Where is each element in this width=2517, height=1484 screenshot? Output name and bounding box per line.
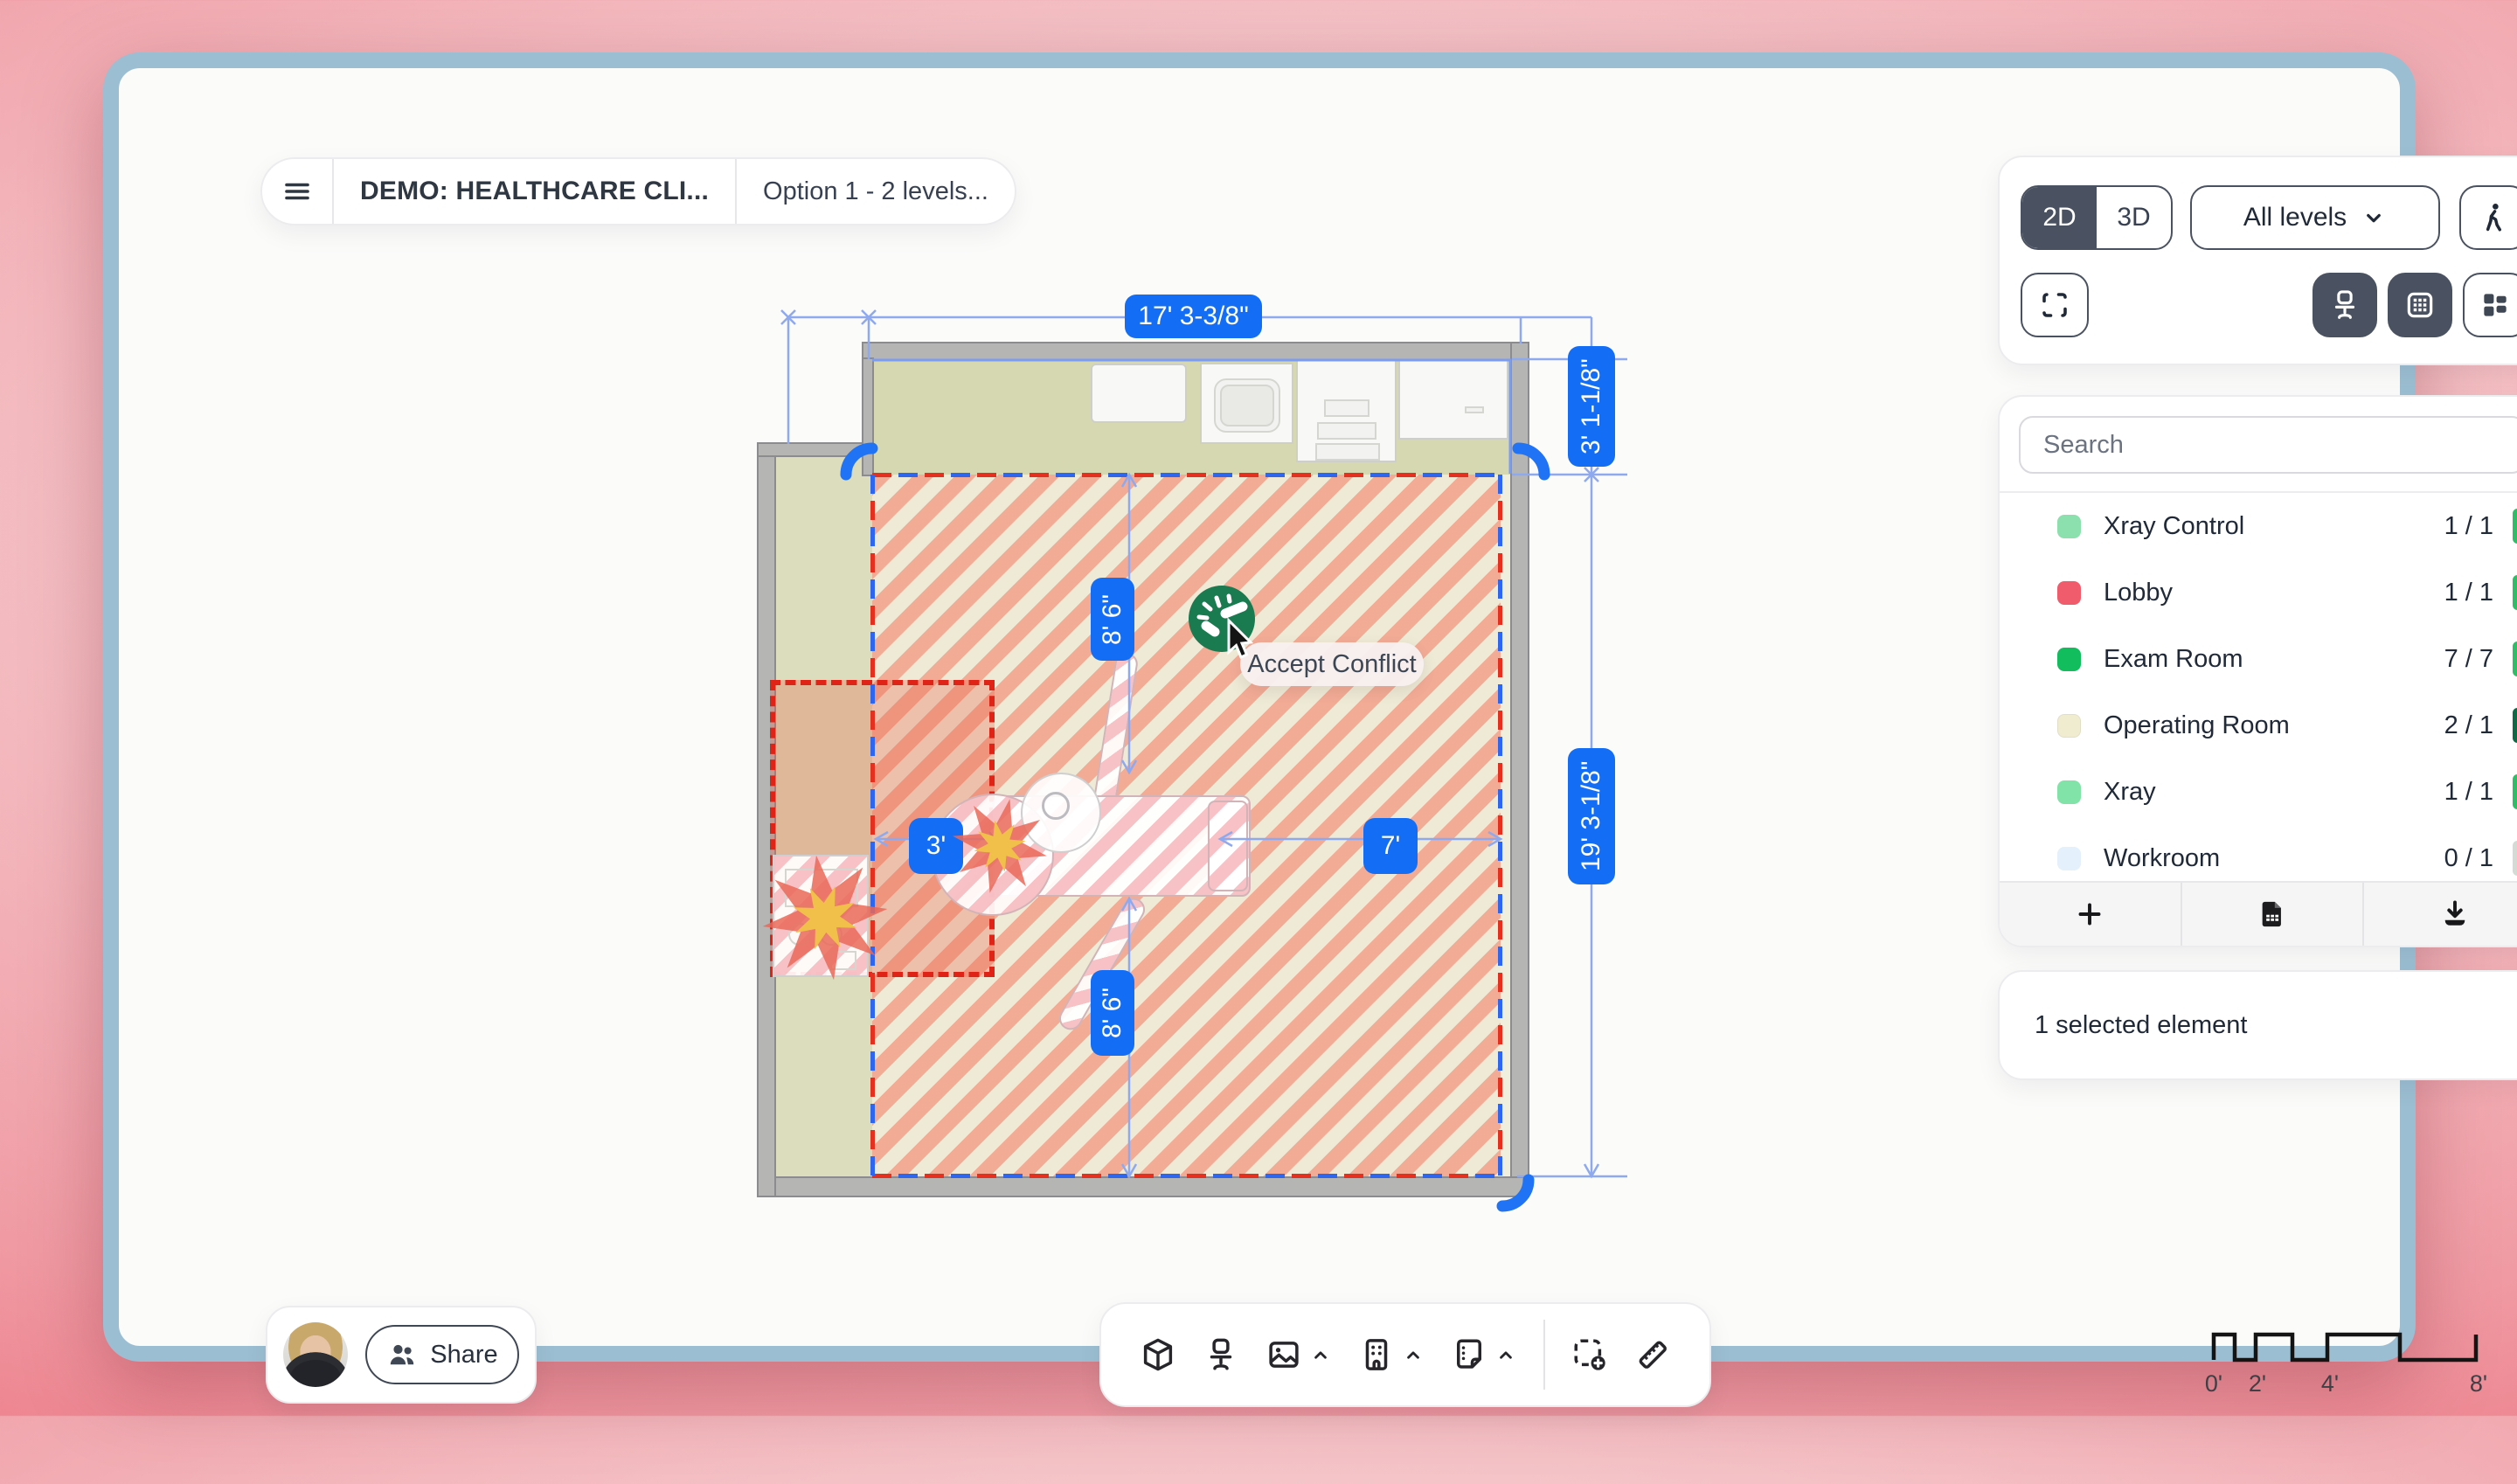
layer-count: 2 / 1 bbox=[2444, 711, 2493, 740]
appliance-detail bbox=[1315, 443, 1380, 461]
chevron-down-icon bbox=[2361, 205, 2387, 231]
fullscreen-icon bbox=[2039, 289, 2070, 321]
file-spreadsheet-icon bbox=[2257, 899, 2287, 929]
color-swatch bbox=[2057, 581, 2081, 605]
share-card: Share bbox=[266, 1306, 537, 1404]
status-bar bbox=[2513, 641, 2517, 676]
dim-label-clearance-left[interactable]: 3' bbox=[909, 818, 963, 874]
report-button[interactable] bbox=[2181, 883, 2363, 946]
scale-tick-label: 8' bbox=[2470, 1370, 2487, 1397]
counter-shelf[interactable] bbox=[1091, 364, 1187, 423]
xray-machine-head-ring bbox=[1042, 792, 1070, 820]
scale-tick-label: 4' bbox=[2321, 1370, 2339, 1397]
console-knob bbox=[788, 923, 811, 946]
chevron-up-icon bbox=[1309, 1343, 1332, 1366]
zone-border-left bbox=[870, 475, 875, 1176]
wall-top bbox=[863, 343, 1528, 359]
selection-status-text: 1 selected element bbox=[2035, 1011, 2247, 1040]
office-chair-icon bbox=[1203, 1336, 1239, 1373]
sink-unit[interactable] bbox=[1200, 363, 1293, 444]
layers-panel: Xray Control 1 / 1 Lobby 1 / 1 Exam Room… bbox=[1998, 395, 2517, 947]
app-window: 17' 3-3/8" 3' 1-1/8" 19' 3-1/8" 8' 6" 8'… bbox=[103, 52, 2416, 1362]
dim-label-offset-right[interactable]: 3' 1-1/8" bbox=[1568, 346, 1615, 467]
menu-button[interactable] bbox=[262, 159, 332, 224]
status-bar bbox=[2513, 575, 2517, 610]
walk-icon bbox=[2477, 201, 2510, 234]
furniture-view-button[interactable] bbox=[2312, 273, 2377, 337]
appliance-detail bbox=[1317, 422, 1376, 440]
notes-tool[interactable] bbox=[1451, 1336, 1517, 1373]
layer-label: Xray bbox=[2104, 778, 2444, 807]
note-icon bbox=[1451, 1336, 1487, 1373]
layer-label: Exam Room bbox=[2104, 645, 2444, 674]
share-button-label: Share bbox=[430, 1341, 497, 1370]
equipment-console[interactable] bbox=[773, 855, 869, 977]
layer-count: 1 / 1 bbox=[2444, 778, 2493, 807]
layer-label: Xray Control bbox=[2104, 512, 2444, 541]
select-add-icon bbox=[1571, 1336, 1608, 1373]
layer-count: 1 / 1 bbox=[2444, 512, 2493, 541]
cube-3d-icon bbox=[1140, 1336, 1176, 1373]
people-icon bbox=[386, 1339, 418, 1370]
grid-icon bbox=[2403, 288, 2437, 322]
status-bar bbox=[2513, 841, 2517, 876]
measure-tool[interactable] bbox=[1634, 1336, 1671, 1373]
bottom-toolbar bbox=[1099, 1302, 1711, 1407]
project-title[interactable]: DEMO: HEALTHCARE CLI... bbox=[332, 159, 735, 224]
avatar[interactable] bbox=[283, 1322, 348, 1387]
scale-bar: 0' 2' 4' 8' bbox=[2199, 1320, 2517, 1407]
levels-dropdown-value: All levels bbox=[2243, 203, 2347, 232]
plus-icon bbox=[2074, 898, 2105, 930]
zone-border-bottom bbox=[872, 1174, 1501, 1178]
layer-count: 7 / 7 bbox=[2444, 645, 2493, 674]
layer-row-workroom[interactable]: Workroom 0 / 1 bbox=[2000, 825, 2517, 884]
layer-label: Operating Room bbox=[2104, 711, 2444, 740]
status-bar bbox=[2513, 509, 2517, 544]
layer-row-lobby[interactable]: Lobby 1 / 1 bbox=[2000, 559, 2517, 626]
export-button[interactable] bbox=[2362, 883, 2517, 946]
tab-3d[interactable]: 3D bbox=[2097, 187, 2171, 248]
fullscreen-button[interactable] bbox=[2021, 273, 2089, 337]
sink-basin-inner bbox=[1220, 385, 1274, 426]
layer-count: 1 / 1 bbox=[2444, 579, 2493, 607]
color-swatch bbox=[2057, 847, 2081, 870]
color-swatch bbox=[2057, 714, 2081, 738]
ruler-icon bbox=[1634, 1336, 1671, 1373]
status-bar bbox=[2513, 708, 2517, 743]
search-input[interactable] bbox=[2019, 416, 2517, 474]
zone-border-top bbox=[872, 473, 1501, 477]
xray-machine-table-cap bbox=[1208, 801, 1248, 891]
building-tool[interactable] bbox=[1358, 1336, 1425, 1373]
view-controls-card: 2D 3D All levels bbox=[1998, 156, 2517, 365]
tab-2d[interactable]: 2D bbox=[2022, 187, 2097, 248]
office-chair-icon bbox=[2328, 288, 2361, 322]
desktop-background: 17' 3-3/8" 3' 1-1/8" 19' 3-1/8" 8' 6" 8'… bbox=[0, 0, 2517, 1416]
wall-left-room-top bbox=[759, 444, 872, 455]
furniture-tool[interactable] bbox=[1203, 1336, 1239, 1373]
select-area-tool[interactable] bbox=[1571, 1336, 1608, 1373]
scale-tick-label: 2' bbox=[2249, 1370, 2266, 1397]
appliance-unit[interactable] bbox=[1296, 359, 1397, 462]
toolbar-divider bbox=[1543, 1320, 1545, 1390]
scale-tick-label: 0' bbox=[2205, 1370, 2222, 1397]
dim-label-interior-bottom[interactable]: 8' 6" bbox=[1091, 970, 1134, 1056]
accept-conflict-button[interactable] bbox=[1189, 586, 1255, 652]
layer-row-xray[interactable]: Xray 1 / 1 bbox=[2000, 759, 2517, 825]
appliance-detail bbox=[1324, 399, 1369, 417]
panel-footer bbox=[2000, 881, 2517, 946]
color-swatch bbox=[2057, 780, 2081, 804]
color-swatch bbox=[2057, 515, 2081, 538]
view-3d-tool[interactable] bbox=[1140, 1336, 1176, 1373]
dim-label-width[interactable]: 17' 3-3/8" bbox=[1125, 295, 1262, 338]
dim-label-clearance-right[interactable]: 7' bbox=[1363, 818, 1418, 874]
cabinet-handle bbox=[1465, 406, 1484, 413]
status-bar bbox=[2513, 774, 2517, 809]
wall-right bbox=[1512, 343, 1528, 1196]
chevron-up-icon bbox=[1494, 1343, 1517, 1366]
console-knob bbox=[820, 923, 842, 946]
image-icon bbox=[1265, 1336, 1302, 1373]
cabinet-run[interactable] bbox=[1398, 359, 1508, 440]
building-icon bbox=[1358, 1336, 1395, 1373]
levels-dropdown[interactable]: All levels bbox=[2190, 185, 2440, 250]
wall-bottom bbox=[759, 1178, 1528, 1196]
layout-icon bbox=[2479, 288, 2512, 322]
selection-status-card: 1 selected element bbox=[1998, 970, 2517, 1080]
layer-row-operating-room[interactable]: Operating Room 2 / 1 bbox=[2000, 692, 2517, 759]
dim-label-height-right[interactable]: 19' 3-1/8" bbox=[1568, 748, 1615, 884]
layout-view-button[interactable] bbox=[2463, 273, 2517, 337]
share-button[interactable]: Share bbox=[365, 1325, 519, 1384]
color-swatch bbox=[2057, 648, 2081, 671]
walkthrough-button[interactable] bbox=[2459, 185, 2517, 250]
layer-list: Xray Control 1 / 1 Lobby 1 / 1 Exam Room… bbox=[2000, 493, 2517, 884]
dim-label-interior-top[interactable]: 8' 6" bbox=[1091, 578, 1134, 661]
grid-view-button[interactable] bbox=[2388, 273, 2452, 337]
option-selector[interactable]: Option 1 - 2 levels... bbox=[735, 159, 1015, 224]
view-mode-toggle: 2D 3D bbox=[2021, 185, 2173, 250]
zone-border-right bbox=[1498, 475, 1502, 1176]
layer-label: Lobby bbox=[2104, 579, 2444, 607]
layer-row-xray-control[interactable]: Xray Control 1 / 1 bbox=[2000, 493, 2517, 559]
add-layer-button[interactable] bbox=[2000, 883, 2181, 946]
chevron-up-icon bbox=[1402, 1343, 1425, 1366]
scale-bar-wave bbox=[2199, 1320, 2517, 1369]
accept-conflict-tooltip: Accept Conflict bbox=[1240, 642, 1424, 686]
hamburger-icon bbox=[281, 176, 313, 207]
layer-count: 0 / 1 bbox=[2444, 844, 2493, 873]
layer-label: Workroom bbox=[2104, 844, 2444, 873]
layer-row-exam-room[interactable]: Exam Room 7 / 7 bbox=[2000, 626, 2517, 692]
wall-divider bbox=[863, 359, 872, 475]
images-tool[interactable] bbox=[1265, 1336, 1332, 1373]
console-detail bbox=[830, 951, 856, 970]
download-icon bbox=[2439, 898, 2471, 930]
console-detail bbox=[785, 869, 858, 907]
project-header: DEMO: HEALTHCARE CLI... Option 1 - 2 lev… bbox=[260, 157, 1016, 225]
